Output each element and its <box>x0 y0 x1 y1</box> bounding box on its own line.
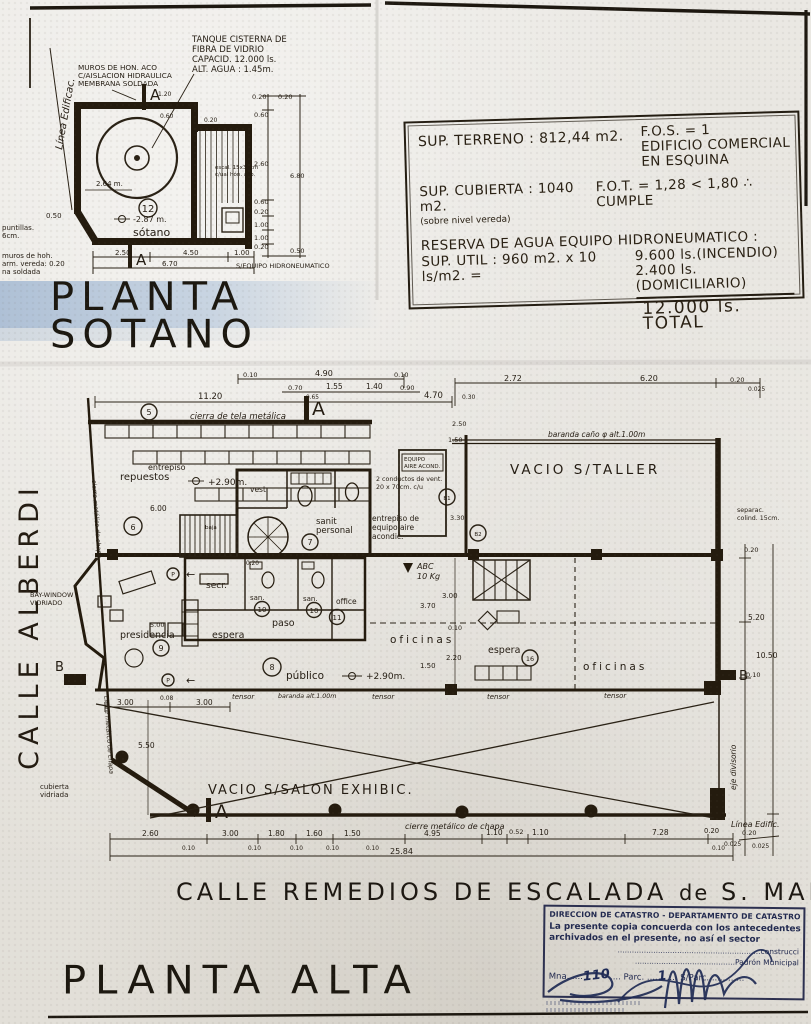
dim: 1.10 <box>532 828 549 837</box>
parc-label: Parc. <box>623 972 644 982</box>
section-b-left: B <box>55 660 64 675</box>
title-planta-word: PLANTA <box>50 279 259 316</box>
sup-cubierta: SUP. CUBIERTA : 1040 m2. <box>419 181 586 216</box>
street-remedios-label: CALLE REMEDIOS DE ESCALADA de S. MARTIN <box>176 878 811 906</box>
circle-11: 11 <box>333 614 342 622</box>
parc-handwritten: 1 <box>657 968 668 984</box>
dim: 2.50 <box>452 420 466 428</box>
mna-handwritten: 110 <box>582 967 611 985</box>
dim: 0.025 <box>748 386 765 393</box>
dim: 3.00 <box>117 698 134 707</box>
stamp-dots1: ........................................… <box>549 945 799 957</box>
tank-note-line1: TANQUE CISTERNA DE <box>191 35 287 45</box>
entq-label2: equipo aire <box>372 523 415 532</box>
tank-note-line2: FIBRA DE VIDRIO <box>192 45 264 55</box>
dim: 11.20 <box>198 392 222 402</box>
circle-9: 9 <box>158 644 163 653</box>
tank-note-line3: CAPACID. 12.000 ls. <box>192 55 276 65</box>
title-planta-sotano: PLANTA SOTANO <box>50 279 259 353</box>
repuestos-label: repuestos <box>120 472 169 483</box>
equipo-label2: AIRE ACOND. <box>404 464 441 470</box>
dim: 6.00 <box>150 504 167 513</box>
dim: 0.52 <box>509 828 523 836</box>
circle-p1: P <box>171 572 175 579</box>
dim: 0.10 <box>712 846 725 852</box>
reserva-values: 9.600 ls.(INCENDIO) 2.400 ls.(DOMICILIAR… <box>635 245 796 333</box>
dim: 4.70 <box>424 391 443 401</box>
dim: 1.00 <box>254 234 268 242</box>
domiciliario-value: 2.400 ls.(DOMICILIARIO) <box>635 260 794 294</box>
en-esquina: EN ESQUINA <box>641 151 791 170</box>
wall-blocks <box>64 396 736 822</box>
dim: 0.10 <box>248 846 261 852</box>
dim: 5.20 <box>748 613 765 622</box>
circle-p2: P <box>166 678 170 685</box>
baranda-label: baranda caño φ alt.1.00m <box>548 430 645 439</box>
section-a-bottom: A <box>136 251 147 269</box>
blueprint-page: TANQUE CISTERNA DE FIBRA DE VIDRIO CAPAC… <box>0 0 811 1024</box>
entq-label1: entrepiso de <box>372 514 419 523</box>
circle-10b: 10 <box>310 607 319 615</box>
dim: 2.50 <box>115 249 131 257</box>
dim: 3.00 <box>196 698 213 707</box>
extinguisher-icon <box>403 563 413 573</box>
title-sotano-word: SOTANO <box>50 316 259 353</box>
san-label-2: san. <box>303 595 318 603</box>
dim: 0.20 <box>254 208 268 216</box>
dim: 0.50 <box>46 212 62 220</box>
alta-labels: CALLE ALBERDI 5 cierra de tela metálica … <box>14 369 780 856</box>
presidencia-label: presidencia <box>120 630 175 641</box>
puntillas-note1: puntillas. <box>2 224 34 232</box>
stair-note2: c/ual hón. aco. <box>215 171 256 178</box>
circle-16: 16 <box>526 655 534 663</box>
bay-window-label1: BAY-WINDOW <box>30 591 74 599</box>
dim: 0.08 <box>160 695 174 702</box>
street-de: de <box>679 881 709 905</box>
vest-label: vest. <box>250 485 268 494</box>
sup-util: SUP. UTIL : 960 m2. x 10 ls/m2. = <box>421 249 631 339</box>
circle-7: 7 <box>307 538 312 547</box>
dim: 0.65 <box>306 395 319 401</box>
sotano-stairs <box>200 131 243 238</box>
secr-label: secr. <box>206 581 227 591</box>
dim: 0.10 <box>182 846 195 852</box>
dim: 1.20 <box>158 91 172 98</box>
sup-terreno: SUP. TERRENO : 812,44 m2. <box>418 125 624 150</box>
vacio-taller-label: VACIO S/TALLER <box>510 462 660 478</box>
sup-cubierta-block: SUP. CUBIERTA : 1040 m2. (sobre nivel ve… <box>419 181 587 231</box>
cubierta-label2: vidriada <box>40 791 68 799</box>
tensor-label-1: tensor <box>232 693 255 701</box>
tensor-cables <box>96 702 714 818</box>
paso-label: paso <box>272 618 295 629</box>
muros-note-line3: MEMBRANA SOLDADA <box>78 79 158 88</box>
main-walls <box>75 398 726 815</box>
entrepiso-label: entrepiso <box>148 463 186 472</box>
dim: 4.95 <box>424 829 441 838</box>
dim: 0.60 <box>254 111 268 119</box>
planta-alta-drawing: CALLE ALBERDI 5 cierra de tela metálica … <box>0 358 811 888</box>
street-caps-1: CALLE REMEDIOS DE ESCALADA <box>176 878 667 906</box>
muros-vereda-note1: muros de hoh. <box>2 252 53 260</box>
bay-window-label2: VIDRIADO <box>30 599 62 607</box>
dim: 0.60 <box>160 113 174 120</box>
eje-divisorio-label: eje divisorio <box>729 744 738 790</box>
dim: 0.20 <box>246 561 259 567</box>
nivel-290-a: +2.90m. <box>208 478 247 488</box>
separac-label2: colind. 15cm. <box>737 515 779 522</box>
dim: 0.20 <box>742 829 756 837</box>
dim: 0.10 <box>746 671 760 679</box>
mna-label: Mna. <box>549 972 570 982</box>
circle-10a: 10 <box>258 606 267 614</box>
dim: 1.10 <box>486 828 503 837</box>
sanitary-core <box>237 470 370 557</box>
cierre-vert-label1: cierre metálico de chapa <box>90 480 103 559</box>
muros-vereda-note2: arm. vereda: 0.20 <box>2 260 65 268</box>
entq-label3: acondic. <box>372 532 403 541</box>
dim: 0.60 <box>254 198 268 206</box>
dim: 0.70 <box>288 384 302 392</box>
catastro-stamp: DIRECCION DE CATASTRO - DEPARTAMENTO DE … <box>543 905 806 1001</box>
dim: 6.70 <box>162 260 178 268</box>
circle-b1: B1 <box>443 496 450 502</box>
cierra-tela-label: cierra de tela metálica <box>190 412 286 422</box>
section-a-bottom-main: A <box>215 801 228 823</box>
conductos-label1: 2 conductos de vent. <box>376 476 442 483</box>
dim: 3.70 <box>420 602 436 610</box>
dim: 0.10 <box>243 371 257 379</box>
dim: 2.20 <box>446 654 462 662</box>
sobre-nivel-vereda: (sobre nivel vereda) <box>420 210 587 230</box>
sanit-label2: personal <box>316 526 353 536</box>
tank-note-line4: ALT. AGUA : 1.45m. <box>192 65 273 75</box>
sotano-room-label: sótano <box>133 226 170 239</box>
sparc-dots: ............ <box>712 973 745 983</box>
dim: 1.60 <box>306 829 323 838</box>
dim: 0.20 <box>252 93 266 101</box>
reference-circles <box>124 404 538 686</box>
dim: 0.20 <box>704 827 719 835</box>
tensor-label-4: tensor <box>604 692 627 700</box>
dim: 1.40 <box>366 382 383 391</box>
stamp-mna-row: Mna. ....110.... Parc. ....1.... S/Parc.… <box>549 968 799 986</box>
dim: 0.20 <box>730 376 744 384</box>
dim: 4.50 <box>183 249 199 257</box>
dim: 0.10 <box>326 846 339 852</box>
fos-block: F.O.S. = 1 EDIFICIO COMERCIAL EN ESQUINA <box>640 121 790 170</box>
dim: 2.60 <box>142 829 159 838</box>
abc-kg-label: 10 Kg <box>417 572 440 581</box>
dim: 3.30 <box>450 514 464 522</box>
nivel-290-b: +2.90m. <box>366 672 405 682</box>
title-planta-alta: PLANTA ALTA <box>62 962 420 999</box>
calle-alberdi-label: CALLE ALBERDI <box>14 482 45 770</box>
dim: 6.20 <box>640 374 658 383</box>
dim: 0.20 <box>744 546 758 554</box>
muros-vereda-note3: na soldada <box>2 268 40 276</box>
espera-label-1: espera <box>212 630 244 641</box>
dim: 0.90 <box>400 384 414 392</box>
dim: 0.025 <box>752 843 769 850</box>
dim: 0.30 <box>462 394 476 401</box>
circle-b2: B2 <box>474 532 481 538</box>
circle-6: 6 <box>130 523 135 532</box>
tensor-label-3: tensor <box>487 693 510 701</box>
stamp-line3: archivados en el presente, no así el sec… <box>549 933 799 946</box>
dim: 5.00 <box>150 621 164 629</box>
dim: 0.10 <box>394 371 408 379</box>
dim: 3.00 <box>222 829 239 838</box>
room-number-12: 12 <box>142 204 155 215</box>
dim-total: 25.84 <box>390 847 413 856</box>
stair-note1: escal. 15x30cm <box>215 165 258 171</box>
dim: 1.80 <box>268 829 285 838</box>
conductos-label2: 20 x 70cm. c/u <box>376 484 423 491</box>
oficinas-label-1: oficinas <box>390 634 454 646</box>
dim: 1.55 <box>326 382 343 391</box>
dim: 10.50 <box>756 651 778 660</box>
dim: 0.20 <box>204 117 218 124</box>
street-smartin: S. MARTIN <box>721 878 811 906</box>
dim: 0.50 <box>290 247 304 255</box>
circle-8: 8 <box>269 663 274 672</box>
dim: 1.50 <box>448 436 462 444</box>
dim: 0.20 <box>278 93 292 101</box>
dim: 0.20 <box>254 243 268 251</box>
oficinas-label-2: oficinas <box>583 661 647 673</box>
equipo-label1: EQUIPO <box>404 457 426 463</box>
baranda2-label: baranda alt.1.00m <box>278 692 336 700</box>
straight-stair <box>180 515 237 557</box>
tensor-label-2: tensor <box>372 693 395 701</box>
linea-edific-label: Línea Edific. <box>731 820 780 829</box>
zoning-info-box: SUP. TERRENO : 812,44 m2. F.O.S. = 1 EDI… <box>403 111 804 310</box>
arrow-left-1: ← <box>186 568 195 581</box>
presidencia-furniture <box>98 571 183 667</box>
dim-264: 2.64 m. <box>96 180 123 188</box>
total-value: 12.000 ls. TOTAL <box>636 293 795 332</box>
sparc-label: S/Parc. <box>680 973 709 983</box>
abc-label: ABC <box>416 562 434 571</box>
office-label: office <box>336 597 357 606</box>
circle-5: 5 <box>146 408 151 417</box>
dim: 6.80 <box>290 172 304 180</box>
dim: 1.00 <box>254 221 268 229</box>
vacio-salon-label: VACIO S/SALON EXHIBIC. <box>208 783 414 798</box>
dim: 3.00 <box>442 592 458 600</box>
cubierta-label1: cubierta <box>40 783 69 791</box>
dim: 1.50 <box>344 829 361 838</box>
publico-label: público <box>286 670 324 682</box>
arrow-left-2: ← <box>186 674 195 687</box>
section-a-top-main: A <box>312 398 325 420</box>
dim: 5.50 <box>138 741 155 750</box>
dim: 2.72 <box>504 374 522 383</box>
dim: 1.50 <box>420 662 436 670</box>
dim: 0.10 <box>366 846 379 852</box>
separac-label1: separac. <box>737 507 764 514</box>
san-label-1: san. <box>250 594 265 602</box>
dim: 4.90 <box>315 369 333 378</box>
stamp-dots2: ........................................… <box>549 956 799 968</box>
dim: 0.10 <box>290 846 303 852</box>
fot-value: F.O.T. = 1,28 < 1,80 ∴ CUMPLE <box>596 175 792 210</box>
level-287: -2.87 m. <box>133 215 167 224</box>
dim: 2.60 <box>254 160 268 168</box>
dim: 7.28 <box>652 828 669 837</box>
dim: 0.10 <box>448 625 462 632</box>
espera-label-2: espera <box>488 645 520 656</box>
puntillas-note2: 6cm. <box>2 232 19 240</box>
linea-edificacion-label: Línea Edificac. <box>53 77 77 150</box>
equipo-hidro-note: S/EQUIPO HIDRONEUMATICO <box>236 262 330 270</box>
dim: 0.025 <box>724 841 741 848</box>
baja-label: baja <box>205 525 217 531</box>
dim: 1.00 <box>234 249 250 257</box>
stamp-header: DIRECCION DE CATASTRO - DEPARTAMENTO DE … <box>549 910 799 922</box>
